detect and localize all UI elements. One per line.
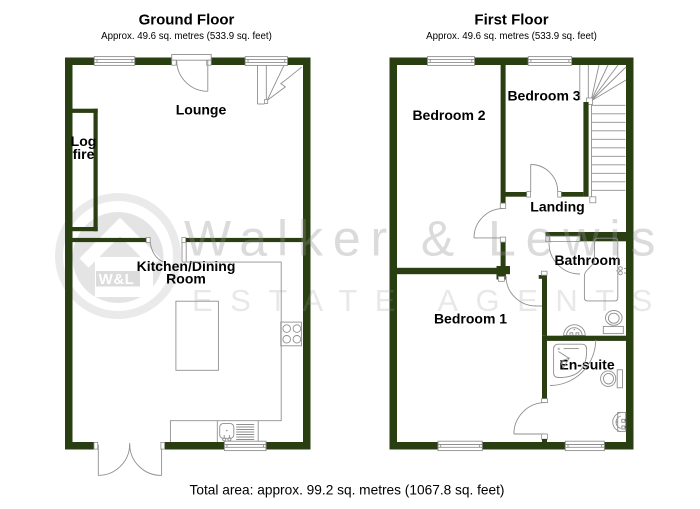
- svg-text:fire: fire: [73, 146, 95, 162]
- svg-text:W&L: W&L: [99, 271, 135, 288]
- svg-text:Total area: approx. 99.2 sq. m: Total area: approx. 99.2 sq. metres (106…: [190, 483, 505, 498]
- svg-text:ESTATE AGENTS: ESTATE AGENTS: [192, 283, 670, 318]
- svg-text:Ground Floor: Ground Floor: [139, 12, 235, 29]
- svg-text:Approx. 49.6 sq. metres (533.9: Approx. 49.6 sq. metres (533.9 sq. feet): [101, 31, 272, 42]
- svg-text:Bedroom 2: Bedroom 2: [412, 107, 485, 123]
- svg-text:First Floor: First Floor: [474, 12, 548, 29]
- svg-text:Approx. 49.6 sq. metres (533.9: Approx. 49.6 sq. metres (533.9 sq. feet): [426, 31, 597, 42]
- svg-text:Bedroom 3: Bedroom 3: [507, 87, 580, 103]
- svg-text:Walker & Lewis: Walker & Lewis: [184, 211, 665, 267]
- svg-text:Lounge: Lounge: [176, 102, 227, 118]
